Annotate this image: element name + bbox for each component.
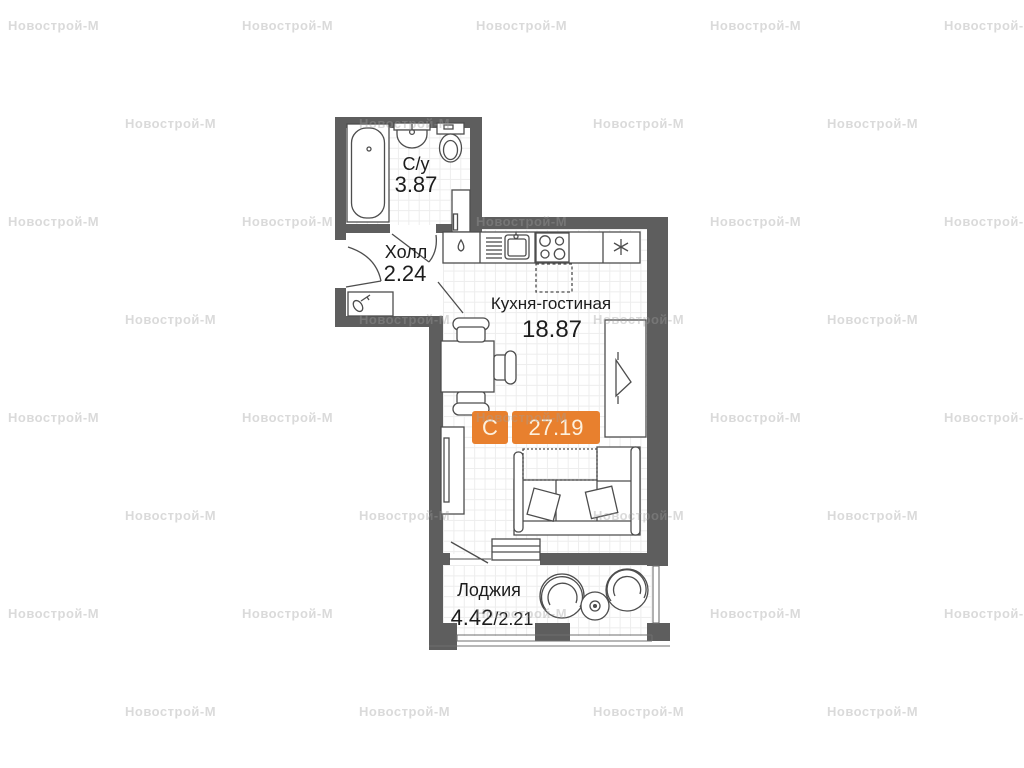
unit-type-badge: С: [472, 411, 508, 444]
floor-plan-furniture-layer: [0, 0, 1024, 768]
pillow: [585, 486, 617, 518]
entrance-cabinet: [348, 292, 393, 316]
bathroom-sink-icon: [394, 123, 430, 148]
kitchen-living-area: 18.87: [472, 317, 632, 342]
total-area-badge: 27.19: [512, 411, 600, 444]
loggia-label: Лоджия: [429, 581, 549, 600]
hall-label: Холл: [366, 243, 446, 262]
interior-door: [438, 282, 463, 313]
kitchen-living-label: Кухня-гостиная: [471, 295, 631, 313]
bathroom-area: 3.87: [376, 173, 456, 196]
dining-table: [441, 341, 494, 392]
loggia-table: [581, 592, 609, 620]
chair-right: [494, 351, 516, 384]
loggia-area-main: 4.42: [451, 605, 494, 630]
loggia-area-reduced: /2.21: [493, 609, 533, 629]
ventilation-shaft: [452, 190, 470, 232]
dishwasher-dashed-outline: [536, 264, 572, 292]
stove-icon: [536, 233, 569, 262]
floor-plan-page: { "watermark": { "text": "Новострой-М" }…: [0, 0, 1024, 768]
hall-area: 2.24: [365, 262, 445, 285]
sofa: [514, 447, 640, 535]
loggia-armchair: [606, 569, 648, 611]
balcony-step-box: [492, 539, 540, 560]
balcony-door: [449, 542, 491, 563]
loggia-area: 4.42/2.21: [422, 606, 562, 630]
tv-stand: [441, 427, 464, 514]
